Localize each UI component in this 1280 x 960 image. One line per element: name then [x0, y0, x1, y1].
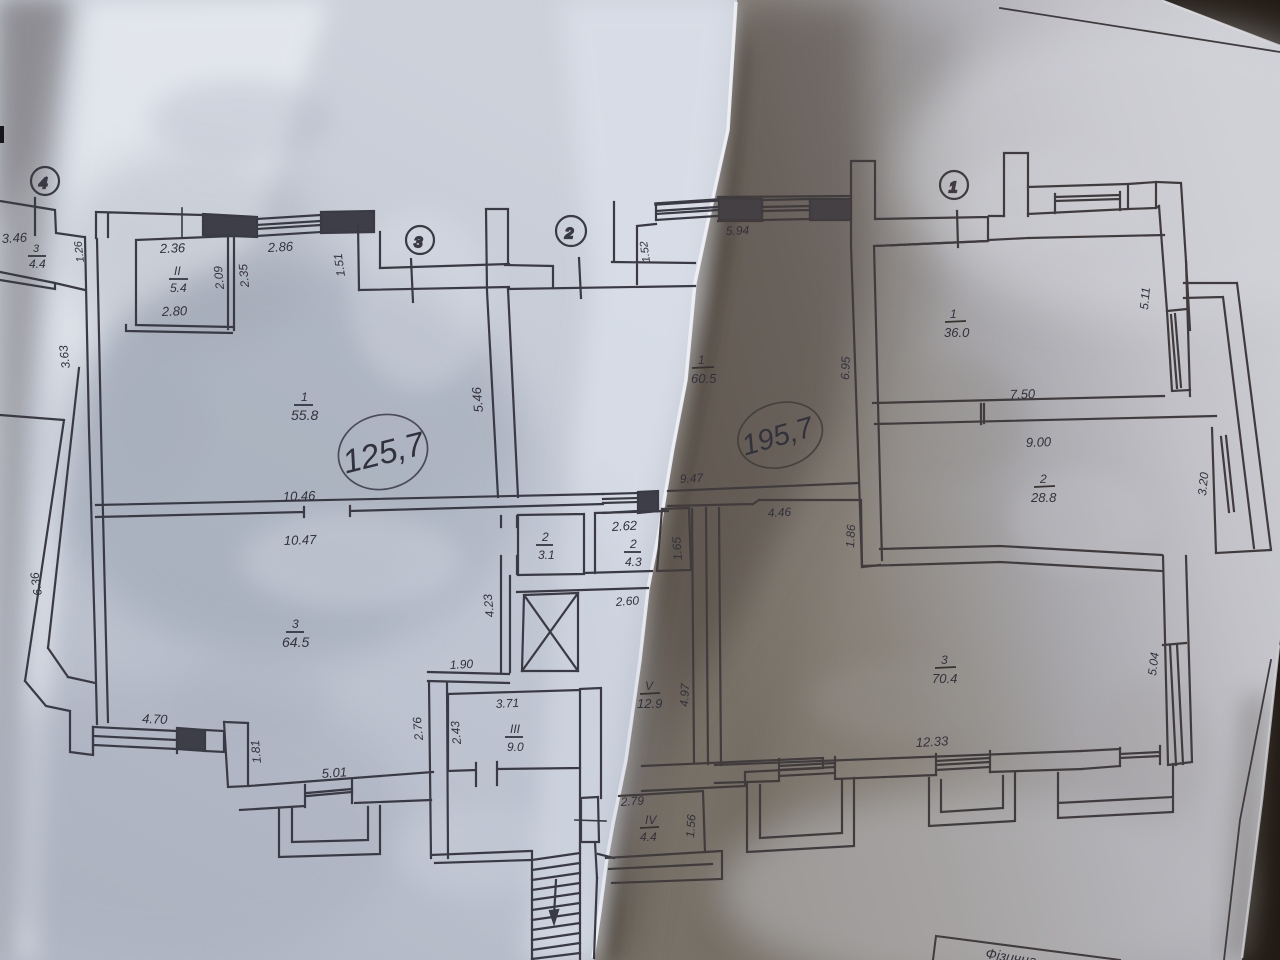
svg-text:4.4: 4.4	[29, 257, 46, 271]
svg-text:1.81: 1.81	[248, 739, 264, 763]
svg-text:36.0: 36.0	[944, 325, 970, 340]
svg-text:2.43: 2.43	[448, 720, 464, 746]
svg-text:2.86: 2.86	[266, 239, 294, 255]
svg-text:3.46: 3.46	[1, 230, 28, 246]
svg-text:12.9: 12.9	[637, 696, 662, 711]
svg-text:2.76: 2.76	[410, 716, 426, 742]
svg-text:2: 2	[1039, 472, 1047, 486]
svg-text:3.20: 3.20	[1195, 471, 1211, 496]
svg-text:1.65: 1.65	[669, 536, 685, 561]
svg-text:4.46: 4.46	[767, 505, 791, 520]
svg-text:2: 2	[564, 225, 574, 242]
svg-text:2.35: 2.35	[236, 263, 252, 289]
svg-text:IV: IV	[645, 813, 657, 827]
svg-text:2.62: 2.62	[610, 518, 638, 534]
svg-text:9.47: 9.47	[679, 471, 704, 486]
svg-text:4.23: 4.23	[481, 593, 497, 618]
svg-text:64.5: 64.5	[282, 634, 309, 650]
svg-text:2: 2	[541, 530, 549, 544]
svg-text:V: V	[645, 679, 654, 693]
svg-text:1.90: 1.90	[449, 657, 473, 672]
svg-text:3: 3	[414, 234, 423, 251]
svg-text:60.5: 60.5	[691, 371, 717, 386]
svg-text:70.4: 70.4	[932, 671, 957, 686]
svg-text:4.70: 4.70	[142, 711, 169, 727]
svg-text:5.01: 5.01	[321, 764, 347, 781]
svg-text:4.97: 4.97	[677, 682, 692, 707]
svg-text:5.46: 5.46	[469, 386, 486, 413]
svg-text:2.09: 2.09	[211, 265, 227, 291]
svg-text:5.94: 5.94	[726, 223, 750, 238]
svg-text:3: 3	[941, 653, 948, 667]
svg-text:3.71: 3.71	[495, 696, 519, 711]
svg-text:2: 2	[629, 537, 637, 551]
svg-text:1: 1	[698, 353, 705, 367]
svg-text:7.50: 7.50	[1010, 386, 1037, 402]
svg-text:2.79: 2.79	[619, 793, 645, 809]
svg-text:2.80: 2.80	[161, 303, 189, 319]
svg-text:2.60: 2.60	[614, 593, 640, 609]
svg-text:4: 4	[39, 175, 47, 192]
svg-text:6.95: 6.95	[838, 356, 853, 380]
svg-text:12.33: 12.33	[915, 733, 949, 750]
svg-text:1: 1	[950, 307, 957, 321]
svg-text:9.00: 9.00	[1026, 434, 1053, 450]
svg-text:1: 1	[949, 179, 957, 196]
svg-text:1.56: 1.56	[683, 814, 699, 839]
svg-text:3.63: 3.63	[56, 344, 73, 369]
svg-text:3: 3	[33, 243, 40, 255]
svg-text:10.47: 10.47	[284, 532, 318, 548]
svg-text:5.11: 5.11	[1137, 287, 1153, 311]
svg-text:1: 1	[301, 390, 308, 404]
svg-text:5.04: 5.04	[1145, 651, 1162, 676]
svg-text:28.8: 28.8	[1030, 490, 1057, 505]
svg-text:4.4: 4.4	[640, 830, 657, 844]
svg-text:3: 3	[292, 617, 299, 631]
svg-text:II: II	[174, 264, 181, 278]
svg-text:3.1: 3.1	[538, 548, 555, 562]
svg-text:5.4: 5.4	[170, 281, 187, 295]
svg-text:2.36: 2.36	[159, 240, 187, 256]
svg-text:55.8: 55.8	[291, 407, 318, 423]
svg-text:4.3: 4.3	[625, 555, 642, 569]
svg-text:1.86: 1.86	[843, 524, 858, 548]
svg-text:10.46: 10.46	[283, 488, 317, 504]
svg-text:9.0: 9.0	[507, 740, 524, 754]
svg-text:III: III	[510, 722, 521, 736]
